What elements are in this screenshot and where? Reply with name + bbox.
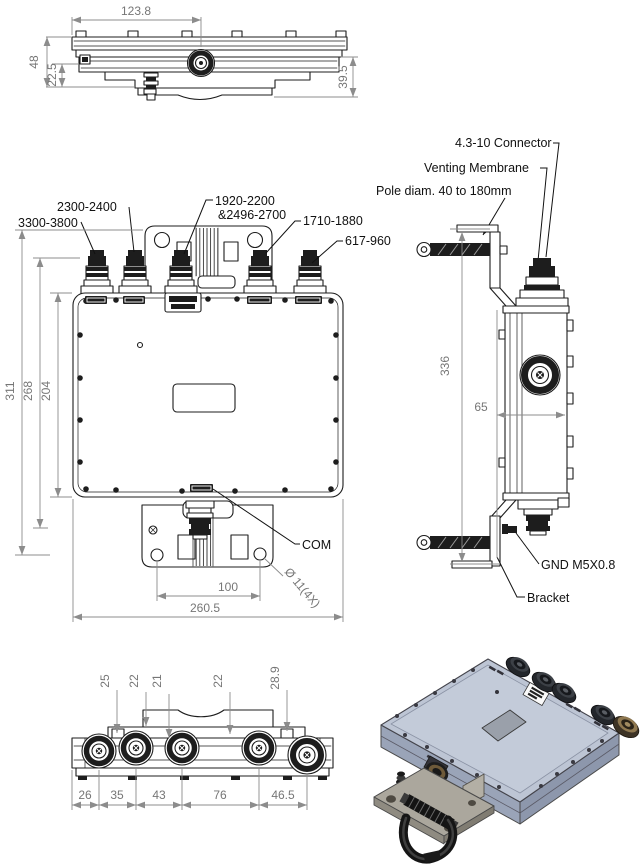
com-callout: COM [302, 538, 331, 552]
dim-bottom-28-9: 28.9 [268, 666, 282, 690]
callout-gnd: GND M5X0.8 [541, 558, 615, 572]
dim-top-depth: 39.5 [336, 65, 350, 89]
callout-connector: 4.3-10 Connector [455, 136, 552, 150]
side-vent-knob [520, 355, 560, 395]
dim-front-204: 204 [39, 381, 53, 401]
view-front: 3300-3800 2300-2400 1920-2200 &2496-2700… [3, 194, 391, 622]
port-label-1710-1880: 1710-1880 [303, 214, 363, 228]
dim-front-311: 311 [3, 381, 17, 400]
dim-bottom-22b: 22 [211, 674, 225, 688]
dim-bottom-25: 25 [98, 674, 112, 688]
dim-side-336: 336 [438, 356, 452, 376]
dim-front-100: 100 [218, 580, 238, 594]
dim-side-65: 65 [474, 400, 488, 414]
side-bottom-clamp [417, 500, 517, 568]
technical-drawing: 123.8 48 22.5 39.5 [0, 0, 640, 867]
front-bottom-bracket [142, 501, 273, 567]
top-view-unit-outline [72, 31, 347, 100]
side-body [499, 306, 573, 500]
view-isometric [374, 652, 640, 862]
top-view-com-connector [188, 50, 215, 77]
side-top-clamp [417, 225, 516, 306]
dim-top-step: 22.5 [45, 63, 59, 87]
callout-bracket: Bracket [527, 591, 570, 605]
port-connector [81, 250, 113, 294]
port-label-617-960: 617-960 [345, 234, 391, 248]
port-label-2496-2700: &2496-2700 [218, 208, 286, 222]
dim-bottom-21: 21 [150, 674, 164, 688]
connector-face [242, 731, 276, 765]
connector-face [119, 731, 153, 765]
callout-pole-diameter: Pole diam. 40 to 180mm [376, 184, 512, 198]
callout-venting: Venting Membrane [424, 161, 529, 175]
dim-bottom-35: 35 [110, 788, 124, 802]
port-label-3300-3800: 3300-3800 [18, 216, 78, 230]
port-label-2300-2400: 2300-2400 [57, 200, 117, 214]
connector-face [82, 734, 116, 768]
dim-bottom-76: 76 [213, 788, 227, 802]
dim-bottom-26: 26 [78, 788, 92, 802]
com-port-tag [190, 484, 213, 492]
hole-callout-11-4x: Ø 11(4X) [282, 565, 323, 611]
iso-bracket-hole [386, 795, 396, 803]
side-callouts-top: 4.3-10 Connector Venting Membrane Pole d… [376, 136, 559, 261]
bottom-feet [78, 776, 327, 780]
dim-front-260-5: 260.5 [190, 601, 220, 615]
dim-bottom-46-5: 46.5 [271, 788, 295, 802]
port-label-1920-2200: 1920-2200 [215, 194, 275, 208]
dim-bottom-43: 43 [152, 788, 166, 802]
connector-face [288, 736, 326, 774]
connector-face [165, 731, 199, 765]
view-top: 123.8 48 22.5 39.5 [27, 4, 358, 100]
dim-top-width: 123.8 [121, 4, 151, 18]
dim-bottom-22a: 22 [127, 674, 141, 688]
side-callouts-bottom: GND M5X0.8 Bracket [497, 533, 615, 605]
view-bottom: 25 22 21 22 28.9 26 35 43 76 46.5 [72, 666, 333, 810]
iso-bracket-hole [468, 800, 476, 806]
front-body [73, 293, 343, 497]
dim-top-height: 48 [27, 55, 41, 69]
port-connector [294, 250, 326, 294]
drawing-canvas: 123.8 48 22.5 39.5 [0, 0, 640, 867]
view-side: 4.3-10 Connector Venting Membrane Pole d… [376, 136, 615, 605]
iso-vent-hole [495, 690, 499, 694]
dim-front-268: 268 [21, 381, 35, 401]
side-top-connector [516, 258, 568, 306]
side-com-connector [518, 498, 569, 535]
gnd-screw [502, 524, 508, 534]
top-view-clamp-screw [144, 73, 158, 100]
